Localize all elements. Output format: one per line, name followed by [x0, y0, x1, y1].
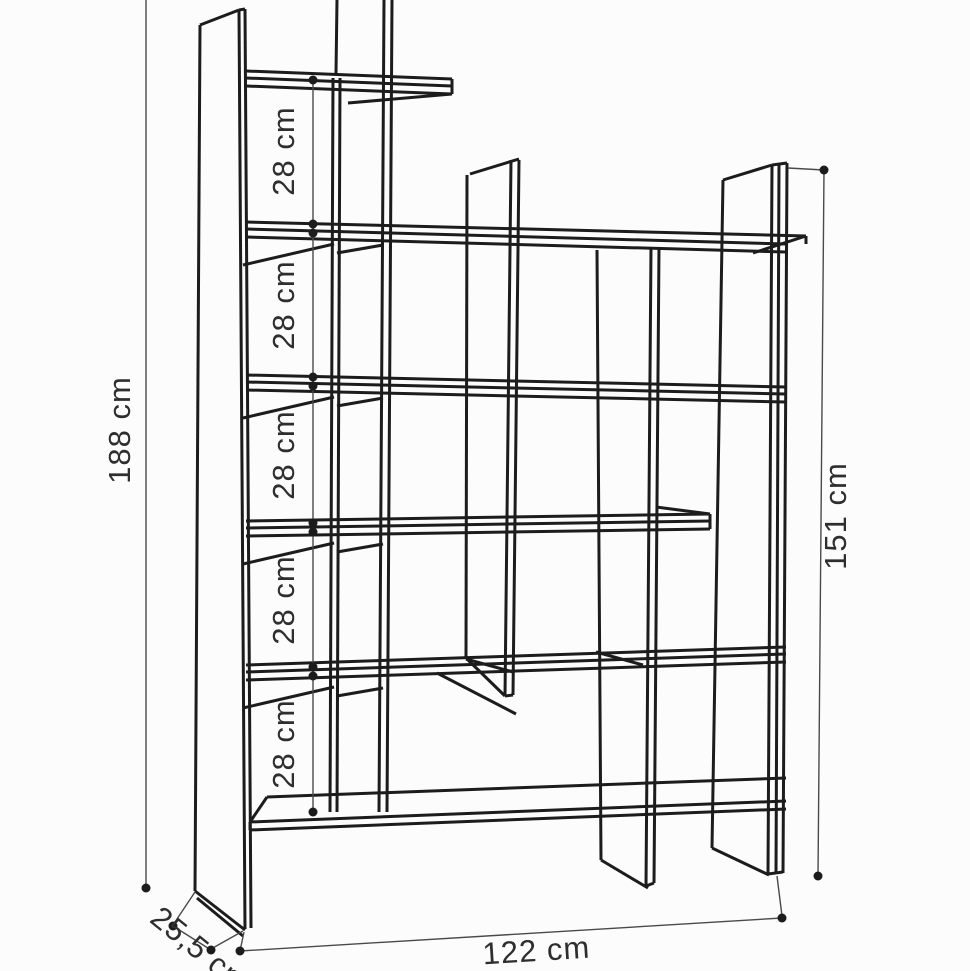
- shelf-gap-label-3: 28 cm: [266, 410, 301, 499]
- left-side-panel: [195, 9, 251, 936]
- dimension-annotations: 188 cm 28 cm 28 cm 28 cm 28 cm 28 cm: [102, 0, 853, 971]
- top-shelf: [246, 71, 452, 103]
- shelf-gap-label-5: 28 cm: [266, 699, 301, 788]
- width-dimension: 122 cm: [236, 876, 787, 971]
- inner-height-dimension: 151 cm: [788, 166, 853, 881]
- overall-height-label: 188 cm: [102, 376, 137, 484]
- shelf-gap-label-4: 28 cm: [266, 555, 301, 644]
- shelf-gap-dimension: 28 cm 28 cm 28 cm 28 cm 28 cm: [266, 76, 318, 817]
- diagram-canvas: 188 cm 28 cm 28 cm 28 cm 28 cm 28 cm: [0, 0, 970, 971]
- width-label: 122 cm: [482, 930, 592, 971]
- middle-divider: [466, 159, 519, 696]
- shelf-gap-label-2: 28 cm: [266, 260, 301, 349]
- overall-height-dimension: 188 cm: [102, 0, 151, 893]
- furniture-dimension-diagram: 188 cm 28 cm 28 cm 28 cm 28 cm 28 cm: [0, 0, 970, 971]
- shelf-gap-label-1: 28 cm: [266, 106, 301, 195]
- right-side-panel: [712, 163, 787, 875]
- inner-height-label: 151 cm: [818, 462, 853, 570]
- depth-dimension: 25,5 cm: [144, 892, 257, 971]
- shelf-level-2: [243, 375, 786, 418]
- right-divider: [597, 247, 659, 888]
